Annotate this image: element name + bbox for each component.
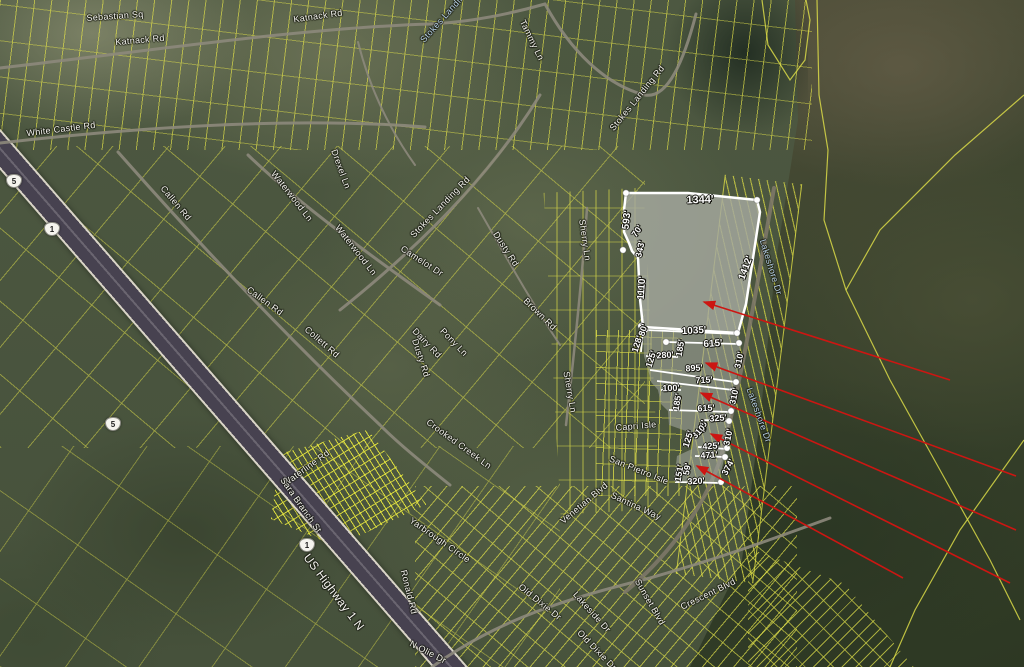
creek-inlet (668, 0, 808, 150)
satellite-map-viewport[interactable]: Sebastian SqKatnack RdKatnack RdWhite Ca… (0, 0, 1024, 667)
